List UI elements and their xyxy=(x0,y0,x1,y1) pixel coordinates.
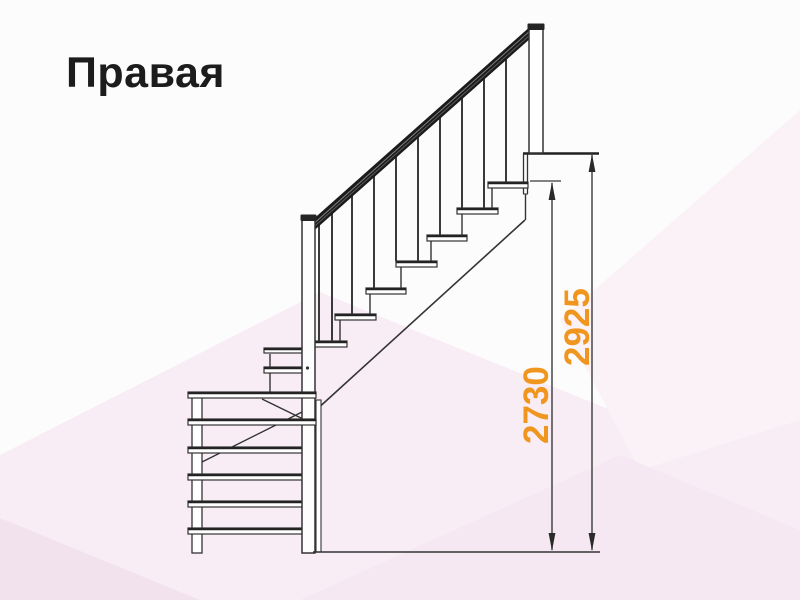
tread xyxy=(335,314,376,320)
tread xyxy=(264,348,303,353)
tread xyxy=(264,367,303,373)
post-cap xyxy=(301,215,317,222)
middle-newel-post xyxy=(301,215,317,554)
tread xyxy=(488,182,528,188)
dimension-label-2925: 2925 xyxy=(558,288,597,366)
staircase-diagram-page: 2730 2925 Правая xyxy=(0,0,800,600)
page-title: Правая xyxy=(66,52,225,95)
post-cap xyxy=(528,24,545,31)
dimension-label-2730: 2730 xyxy=(517,366,556,444)
tread xyxy=(427,235,467,241)
top-newel-post xyxy=(528,24,545,154)
lower-far-post xyxy=(316,400,321,552)
post-dowel-dot xyxy=(306,366,309,369)
tread xyxy=(396,261,437,267)
tread xyxy=(366,288,406,294)
tread xyxy=(457,208,498,214)
